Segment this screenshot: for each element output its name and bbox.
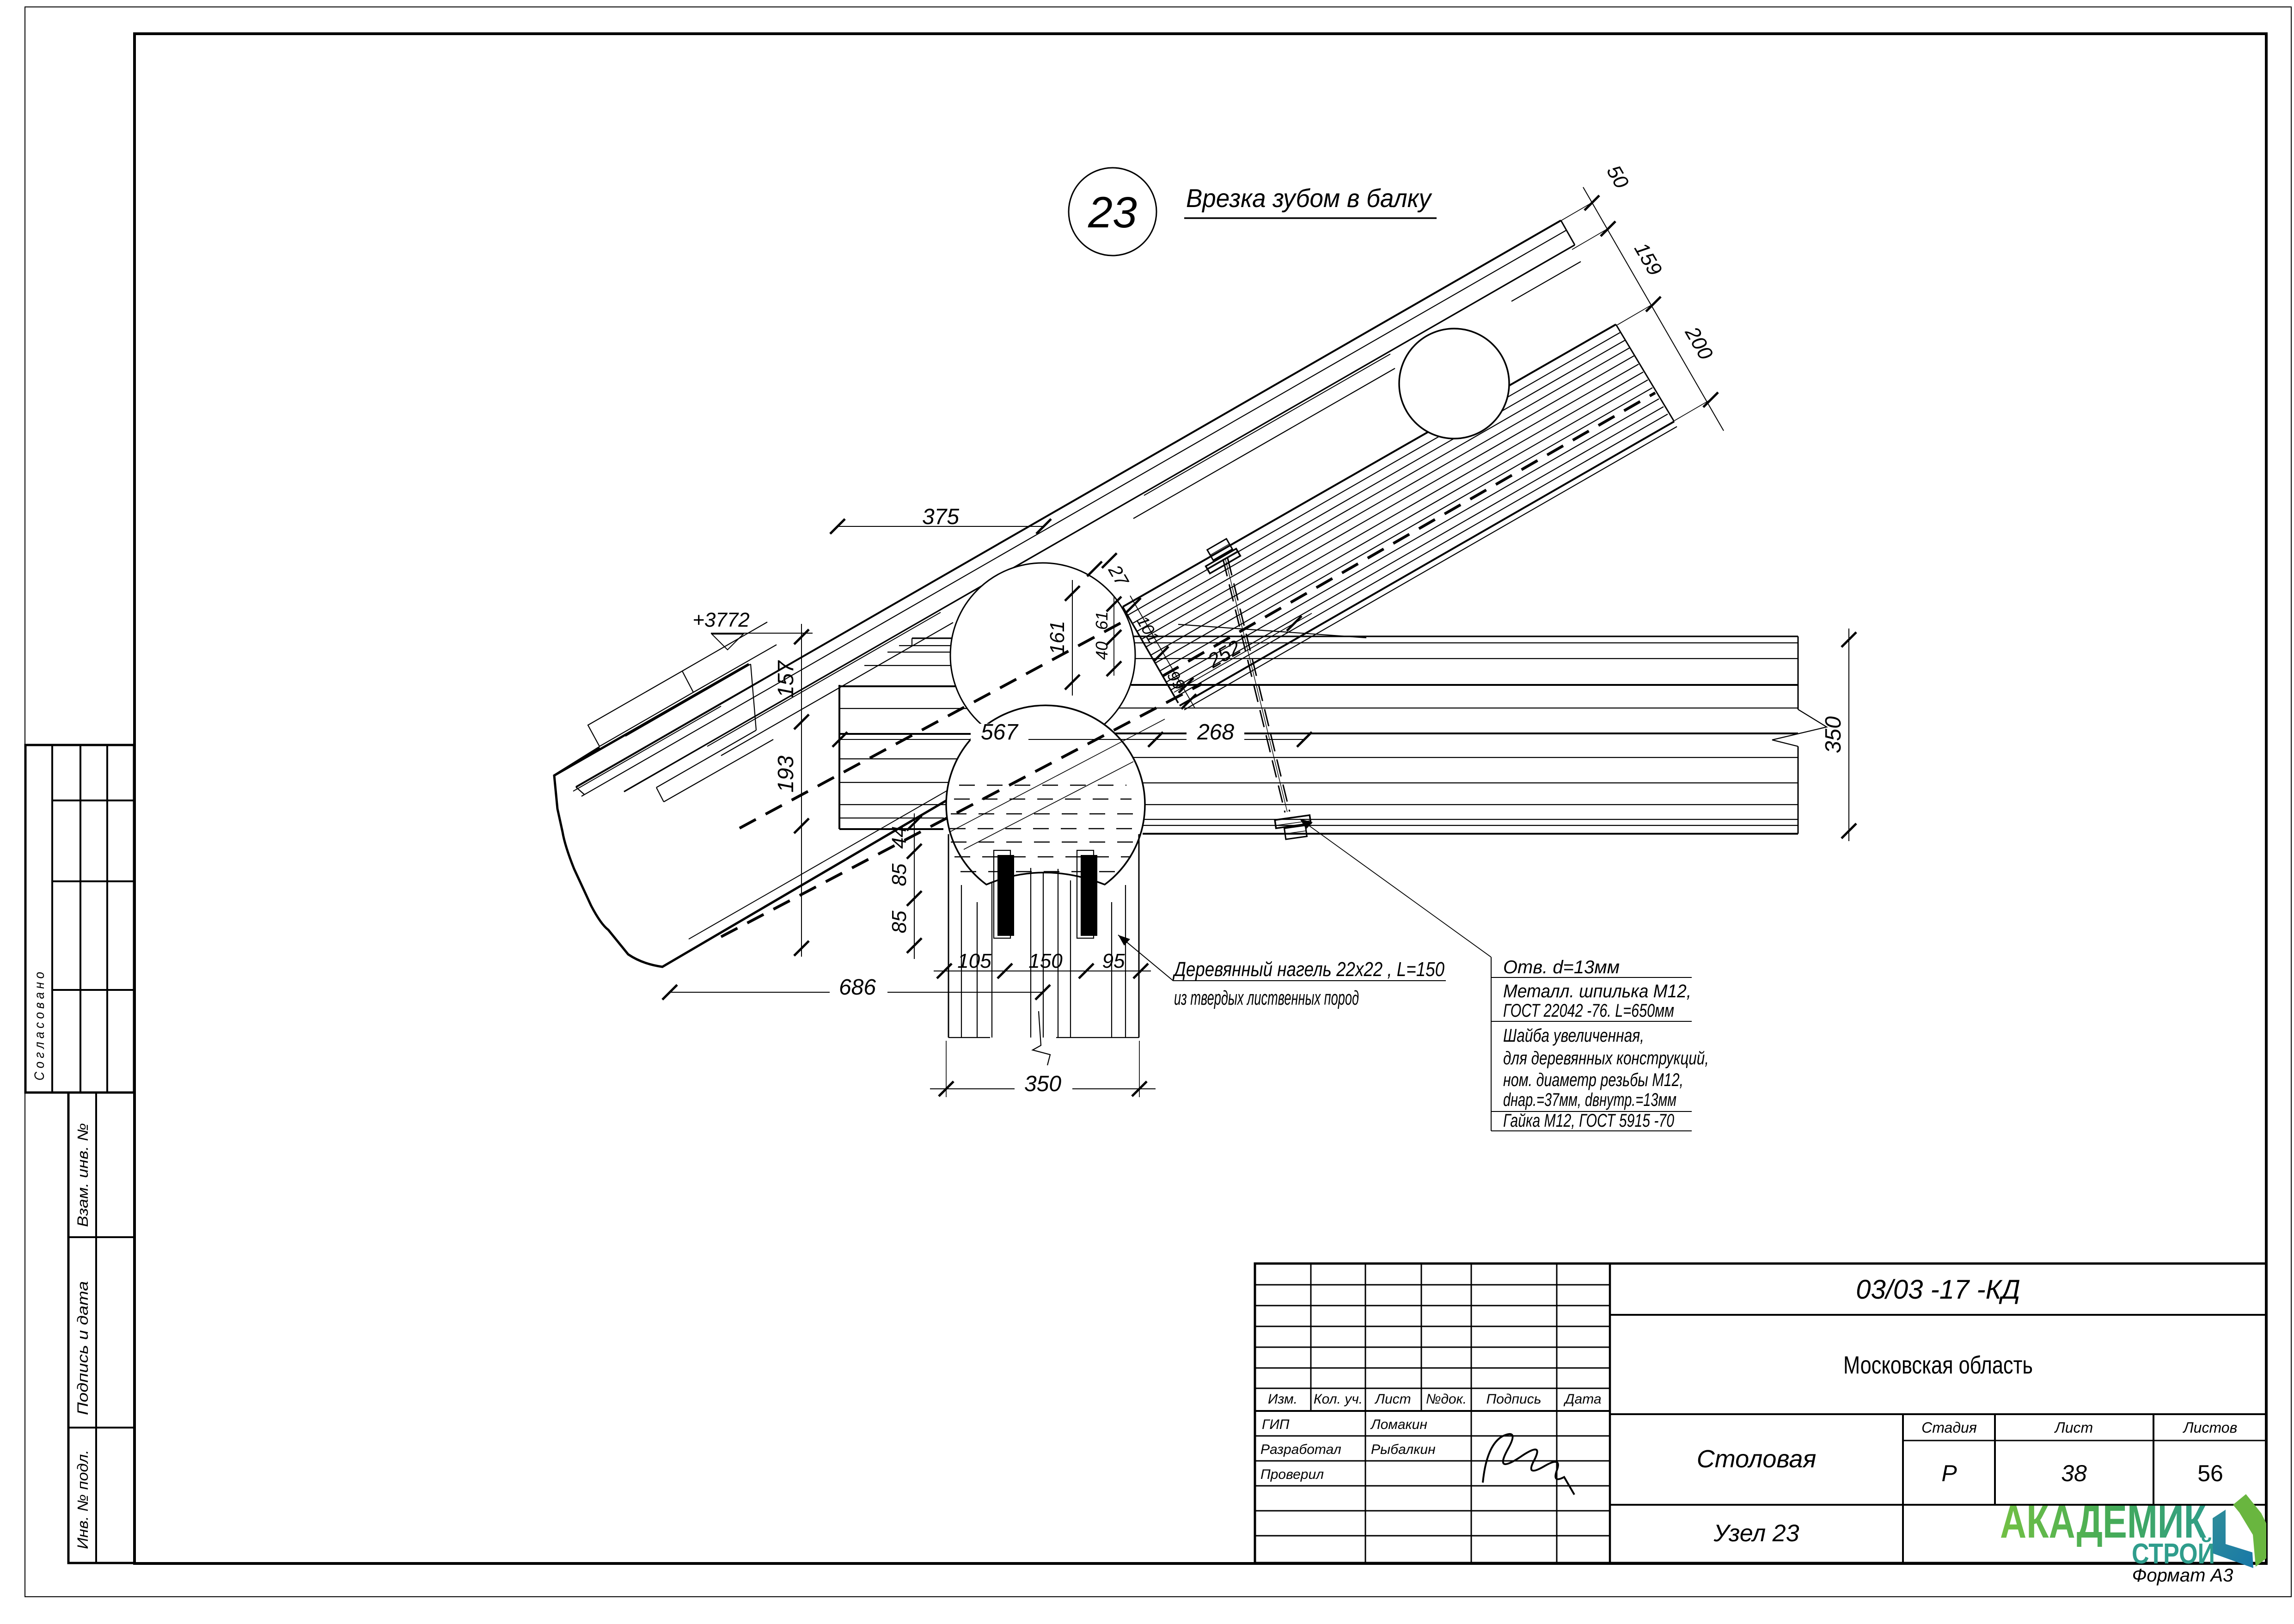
svg-text:56: 56 [2197, 1460, 2223, 1486]
svg-text:161: 161 [1046, 621, 1069, 654]
svg-text:Р: Р [1941, 1460, 1957, 1486]
svg-text:Металл. шпилька М12,: Металл. шпилька М12, [1503, 981, 1691, 1001]
svg-text:Дата: Дата [1563, 1392, 1601, 1407]
svg-text:Отв. d=13мм: Отв. d=13мм [1503, 957, 1620, 977]
svg-text:686: 686 [839, 975, 876, 1000]
svg-text:Ломакин: Ломакин [1370, 1417, 1427, 1432]
svg-text:375: 375 [922, 505, 959, 529]
svg-text:268: 268 [1197, 720, 1234, 745]
svg-text:03/03 -17 -КД: 03/03 -17 -КД [1856, 1275, 2020, 1305]
svg-text:Подпись и дата: Подпись и дата [74, 1281, 91, 1415]
svg-text:Московская область: Московская область [1843, 1351, 2033, 1379]
svg-text:№док.: №док. [1426, 1392, 1467, 1407]
svg-text:Разработал: Разработал [1260, 1442, 1341, 1457]
svg-text:193: 193 [774, 756, 798, 793]
svg-text:157: 157 [774, 660, 798, 698]
svg-text:Рыбалкин: Рыбалкин [1371, 1442, 1436, 1457]
svg-text:95: 95 [1102, 950, 1125, 972]
svg-text:Формат А3: Формат А3 [2132, 1565, 2233, 1586]
svg-text:+3772: +3772 [692, 609, 750, 631]
svg-text:350: 350 [1821, 716, 1846, 753]
svg-text:105: 105 [957, 950, 991, 972]
svg-text:Врезка зубом в балку: Врезка зубом в балку [1186, 183, 1432, 213]
svg-text:Подпись: Подпись [1487, 1392, 1542, 1407]
svg-text:567: 567 [981, 720, 1019, 745]
svg-text:Узел 23: Узел 23 [1713, 1520, 1799, 1547]
svg-text:40: 40 [1092, 641, 1111, 660]
svg-text:Гайка М12, ГОСТ 5915 -70: Гайка М12, ГОСТ 5915 -70 [1503, 1111, 1674, 1131]
svg-text:Изм.: Изм. [1268, 1392, 1297, 1407]
svg-text:44: 44 [888, 826, 911, 849]
svg-text:350: 350 [1024, 1072, 1061, 1096]
svg-text:Листов: Листов [2183, 1419, 2238, 1436]
svg-text:Проверил: Проверил [1260, 1467, 1324, 1482]
svg-text:Лист: Лист [2054, 1419, 2093, 1436]
svg-text:для деревянных конструкций,: для деревянных конструкций, [1503, 1048, 1709, 1068]
svg-text:Инв. № подл.: Инв. № подл. [74, 1450, 91, 1549]
svg-text:150: 150 [1028, 950, 1063, 972]
svg-text:61: 61 [1092, 611, 1111, 630]
svg-text:38: 38 [2061, 1460, 2087, 1486]
svg-text:dнар.=37мм, dвнутр.=13мм: dнар.=37мм, dвнутр.=13мм [1503, 1090, 1676, 1110]
svg-text:Лист: Лист [1374, 1392, 1411, 1407]
svg-text:23: 23 [1088, 188, 1137, 237]
svg-text:из твердых лиственных пород: из твердых лиственных пород [1174, 987, 1359, 1009]
svg-text:Шайба увеличенная,: Шайба увеличенная, [1503, 1026, 1644, 1046]
svg-text:Кол. уч.: Кол. уч. [1314, 1392, 1363, 1407]
svg-text:Стадия: Стадия [1921, 1419, 1977, 1436]
svg-text:С о г л а с о в а н о: С о г л а с о в а н о [32, 972, 47, 1081]
svg-text:Столовая: Столовая [1697, 1445, 1817, 1473]
svg-text:ГИП: ГИП [1262, 1417, 1290, 1432]
svg-text:Взам. инв. №: Взам. инв. № [74, 1123, 91, 1227]
svg-text:85: 85 [888, 863, 911, 886]
svg-text:Деревянный нагель 22х22 , L=15: Деревянный нагель 22х22 , L=150 [1172, 958, 1445, 981]
svg-text:85: 85 [888, 910, 911, 933]
svg-text:ном. диаметр резьбы М12,: ном. диаметр резьбы М12, [1503, 1070, 1683, 1090]
svg-text:ГОСТ 22042 -76. L=650мм: ГОСТ 22042 -76. L=650мм [1503, 1001, 1674, 1021]
